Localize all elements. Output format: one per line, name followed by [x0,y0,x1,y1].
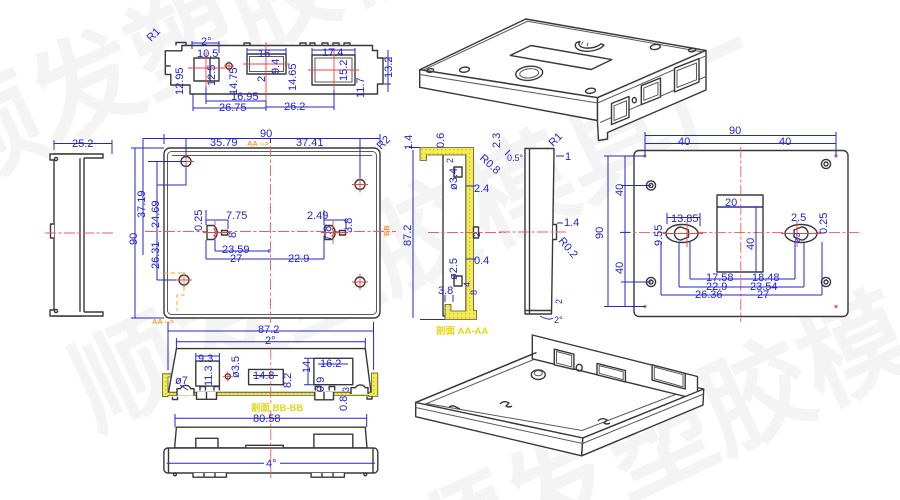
svg-text:26.31: 26.31 [150,241,162,269]
svg-text:40: 40 [779,136,791,148]
svg-text:2: 2 [472,232,482,237]
svg-text:8: 8 [469,290,479,295]
svg-text:3: 3 [341,387,351,392]
svg-text:AA -->: AA --> [152,317,175,326]
svg-text:13.85: 13.85 [671,213,699,225]
svg-text:40: 40 [614,184,626,196]
svg-text:13.2: 13.2 [383,57,395,78]
svg-text:20: 20 [725,197,737,209]
svg-text:14.65: 14.65 [287,63,299,91]
svg-text:37.41: 37.41 [296,137,324,149]
svg-text:0.25: 0.25 [818,213,830,234]
svg-text:2.3: 2.3 [491,133,503,148]
svg-text:37.19: 37.19 [136,190,148,218]
svg-text:ø7: ø7 [175,375,188,387]
svg-text:0.5°: 0.5° [507,153,524,163]
svg-text:2.4: 2.4 [474,183,489,195]
svg-text:26.75: 26.75 [219,102,247,114]
svg-text:7.8: 7.8 [322,226,334,241]
svg-text:8.2: 8.2 [282,373,294,388]
svg-text:4: 4 [462,282,472,287]
svg-text:2: 2 [554,299,564,304]
svg-text:90: 90 [594,227,606,239]
svg-text:12.95: 12.95 [174,67,186,95]
svg-text:2°: 2° [554,315,563,325]
svg-text:12.5: 12.5 [206,65,218,86]
svg-text:2: 2 [256,76,268,82]
svg-text:17.4: 17.4 [322,47,343,59]
svg-text:15.2: 15.2 [338,60,350,81]
svg-text:90: 90 [128,233,140,245]
svg-text:14: 14 [301,361,313,373]
svg-text:ø3.5: ø3.5 [230,356,242,378]
svg-text:26.2: 26.2 [284,101,305,113]
svg-text:9.4: 9.4 [270,59,282,74]
svg-text:11.7: 11.7 [355,77,367,98]
svg-text:24.69: 24.69 [150,200,162,228]
svg-text:26.36: 26.36 [695,289,723,301]
svg-text:0.4: 0.4 [474,255,489,267]
svg-text:3.8: 3.8 [343,218,355,233]
svg-text:3.8: 3.8 [438,285,453,297]
svg-text:27: 27 [230,253,242,265]
svg-text:AA -->: AA --> [247,139,270,148]
svg-text:11.3: 11.3 [203,365,215,386]
svg-text:ø3.4: ø3.4 [448,168,460,190]
svg-text:7.75: 7.75 [226,210,247,222]
svg-text:80.58: 80.58 [253,413,281,425]
svg-text:87.2: 87.2 [402,225,414,246]
svg-text:40: 40 [678,136,690,148]
svg-text:2.5: 2.5 [791,212,806,224]
svg-text:1.4: 1.4 [564,217,579,229]
svg-text:2: 2 [445,158,455,163]
svg-text:40: 40 [614,262,626,274]
svg-text:9.3: 9.3 [198,353,213,365]
svg-text:10.5: 10.5 [197,48,218,60]
svg-text:22.9: 22.9 [288,253,309,265]
svg-text:剖面 AA-AA: 剖面 AA-AA [436,325,488,337]
svg-text:0.6: 0.6 [435,133,447,148]
svg-text:16: 16 [258,48,270,60]
svg-text:0.8: 0.8 [338,396,350,411]
svg-text:BB: BB [382,225,391,236]
svg-text:2°: 2° [265,335,276,347]
svg-text:25.2: 25.2 [72,138,93,150]
svg-text:90: 90 [729,125,741,137]
svg-text:1: 1 [565,151,571,163]
svg-text:4°: 4° [266,458,277,470]
svg-text:0.9: 0.9 [315,377,327,392]
svg-text:27: 27 [757,289,769,301]
svg-text:16.2: 16.2 [320,358,341,370]
svg-text:35.79: 35.79 [210,137,238,149]
svg-text:14.8: 14.8 [253,370,274,382]
svg-text:9.55: 9.55 [653,225,665,246]
svg-text:ø2.5: ø2.5 [448,258,460,280]
svg-text:8: 8 [227,232,239,238]
svg-text:40: 40 [745,238,757,250]
svg-text:0.25: 0.25 [193,210,205,231]
svg-text:ø3: ø3 [792,232,802,243]
svg-text:2°: 2° [201,36,212,48]
